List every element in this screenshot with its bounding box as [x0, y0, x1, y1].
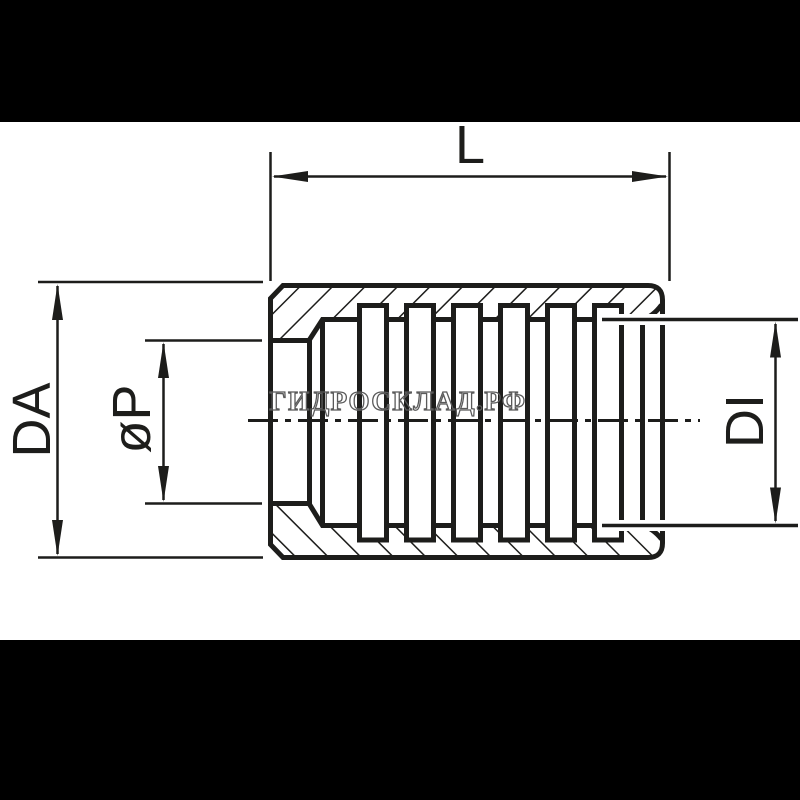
groove	[404, 303, 436, 542]
label-length: L	[455, 115, 485, 175]
groove	[545, 303, 577, 542]
label-outer-diameter: DA	[2, 382, 62, 457]
groove	[451, 303, 483, 542]
technical-drawing: L DA øP DI ГИДРОСКЛАД.РФ	[0, 0, 800, 800]
groove	[592, 303, 624, 542]
ferrule-section-screenshot: L DA øP DI ГИДРОСКЛАД.РФ	[0, 0, 800, 800]
label-inner-diameter: DI	[715, 394, 775, 448]
watermark-text: ГИДРОСКЛАД.РФ	[269, 386, 526, 416]
groove	[498, 303, 530, 542]
groove	[357, 303, 389, 542]
label-collar-bore: øP	[102, 384, 162, 453]
